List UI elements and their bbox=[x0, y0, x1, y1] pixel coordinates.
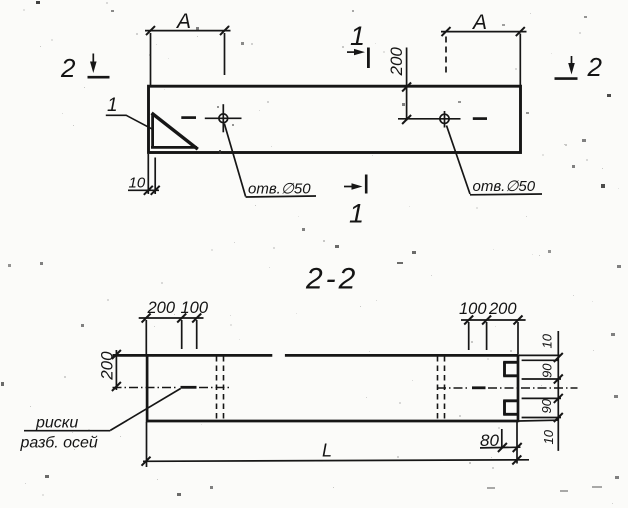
svg-text:A: A bbox=[471, 11, 487, 34]
svg-text:90: 90 bbox=[540, 363, 555, 378]
svg-text:10: 10 bbox=[540, 333, 555, 348]
svg-text:100: 100 bbox=[459, 300, 487, 318]
svg-text:200: 200 bbox=[98, 351, 117, 381]
svg-text:1: 1 bbox=[350, 21, 365, 51]
svg-text:A: A bbox=[175, 10, 191, 33]
svg-text:разб. осей: разб. осей bbox=[20, 435, 98, 452]
svg-text:200: 200 bbox=[488, 300, 517, 318]
svg-text:200: 200 bbox=[147, 299, 176, 317]
svg-text:1: 1 bbox=[349, 199, 364, 229]
svg-text:10: 10 bbox=[541, 429, 556, 444]
svg-text:2: 2 bbox=[60, 53, 76, 83]
svg-text:риски: риски bbox=[35, 415, 78, 432]
svg-text:80: 80 bbox=[480, 431, 499, 450]
svg-text:10: 10 bbox=[129, 175, 146, 192]
svg-text:отв.∅50: отв.∅50 bbox=[248, 181, 311, 198]
svg-text:100: 100 bbox=[181, 299, 209, 317]
svg-text:отв.∅50: отв.∅50 bbox=[473, 178, 536, 195]
svg-text:L: L bbox=[322, 441, 332, 461]
svg-text:2-2: 2-2 bbox=[305, 263, 358, 296]
svg-text:90: 90 bbox=[539, 398, 554, 413]
svg-text:200: 200 bbox=[387, 47, 406, 77]
svg-text:1: 1 bbox=[107, 95, 118, 116]
svg-text:2: 2 bbox=[587, 52, 603, 82]
